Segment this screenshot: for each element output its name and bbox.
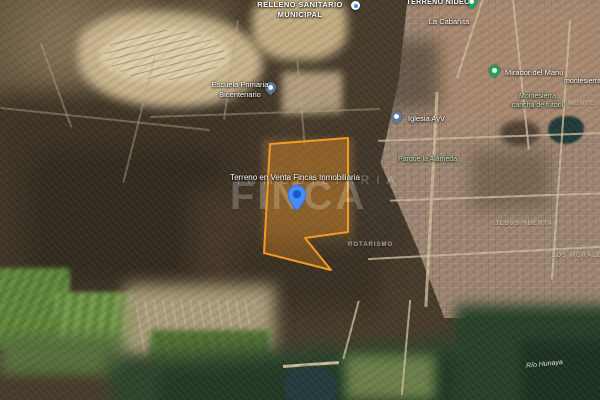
label-escuela-line2: Bicentenario (195, 90, 285, 100)
property-listing-label[interactable]: Terreno en Venta Fincas Inmobiliaria (215, 173, 375, 183)
label-jesus-huerta: JESÚS HUERTA (495, 221, 553, 227)
label-monte-fragment: MONTE (568, 101, 595, 107)
label-rotarismo: ROTARISMO (348, 242, 393, 248)
label-montesierra-edge: montesierra (564, 77, 600, 87)
label-escuela-line1: Escuela Primaria (195, 80, 285, 90)
label-parque-la-alameda[interactable]: Parque la Alameda (398, 155, 457, 164)
label-cancha-line1: Montesierra (495, 92, 580, 101)
label-relleno-sanitario[interactable]: RELLENO SANITARIO MUNICIPAL (240, 0, 360, 20)
label-relleno-line1: RELLENO SANITARIO (240, 0, 360, 10)
label-mirador-del-manu[interactable]: Mirador del Manu (505, 68, 563, 78)
satellite-map[interactable]: FINCA INMOBILIARIA RELLENO SANITARIO MUN… (0, 0, 600, 400)
label-los-morales: LOS MORALES (552, 253, 600, 259)
label-iglesia-ayv[interactable]: Iglesia AyV (408, 114, 445, 124)
label-la-cabanita[interactable]: La Cabañita (414, 17, 484, 27)
label-relleno-line2: MUNICIPAL (240, 10, 360, 20)
label-escuela-primaria[interactable]: Escuela Primaria Bicentenario (195, 80, 285, 99)
label-terreno-nidec[interactable]: TERRENO NIDEC (398, 0, 478, 8)
property-marker-icon[interactable] (288, 185, 306, 211)
